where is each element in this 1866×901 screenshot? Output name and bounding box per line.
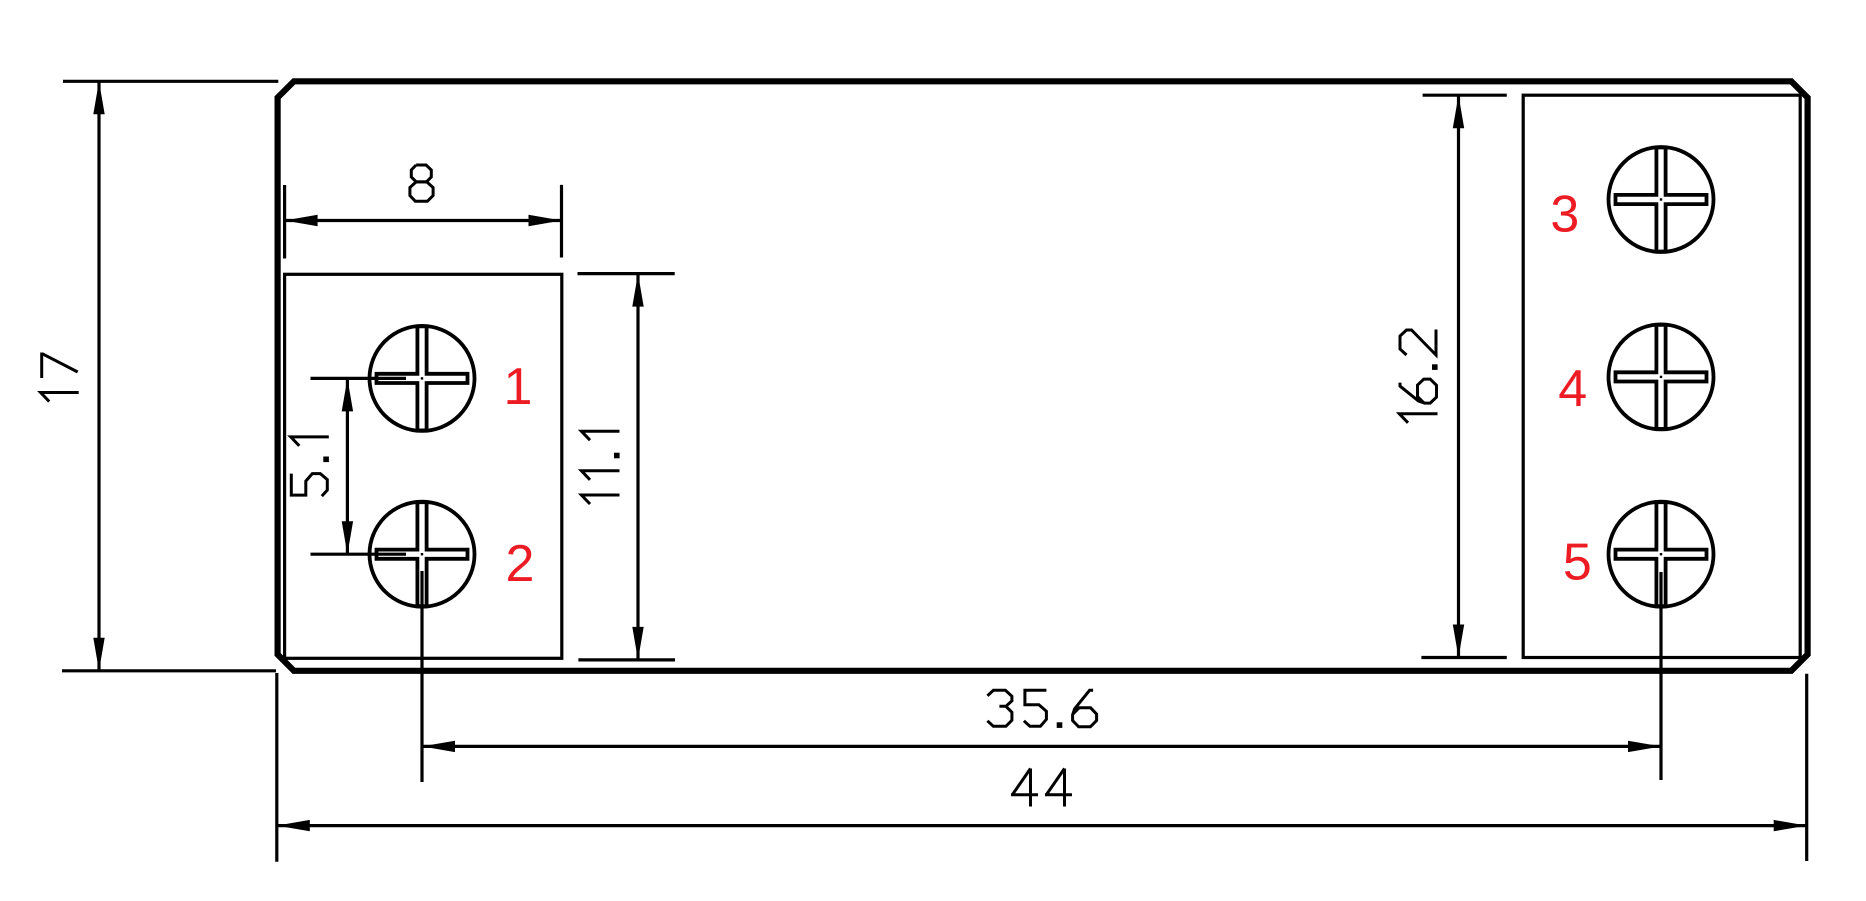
svg-text:4: 4 xyxy=(1558,360,1587,418)
svg-text:3: 3 xyxy=(1550,186,1579,244)
svg-text:2: 2 xyxy=(506,535,535,593)
svg-text:1: 1 xyxy=(504,358,533,416)
svg-text:5: 5 xyxy=(1563,534,1592,592)
